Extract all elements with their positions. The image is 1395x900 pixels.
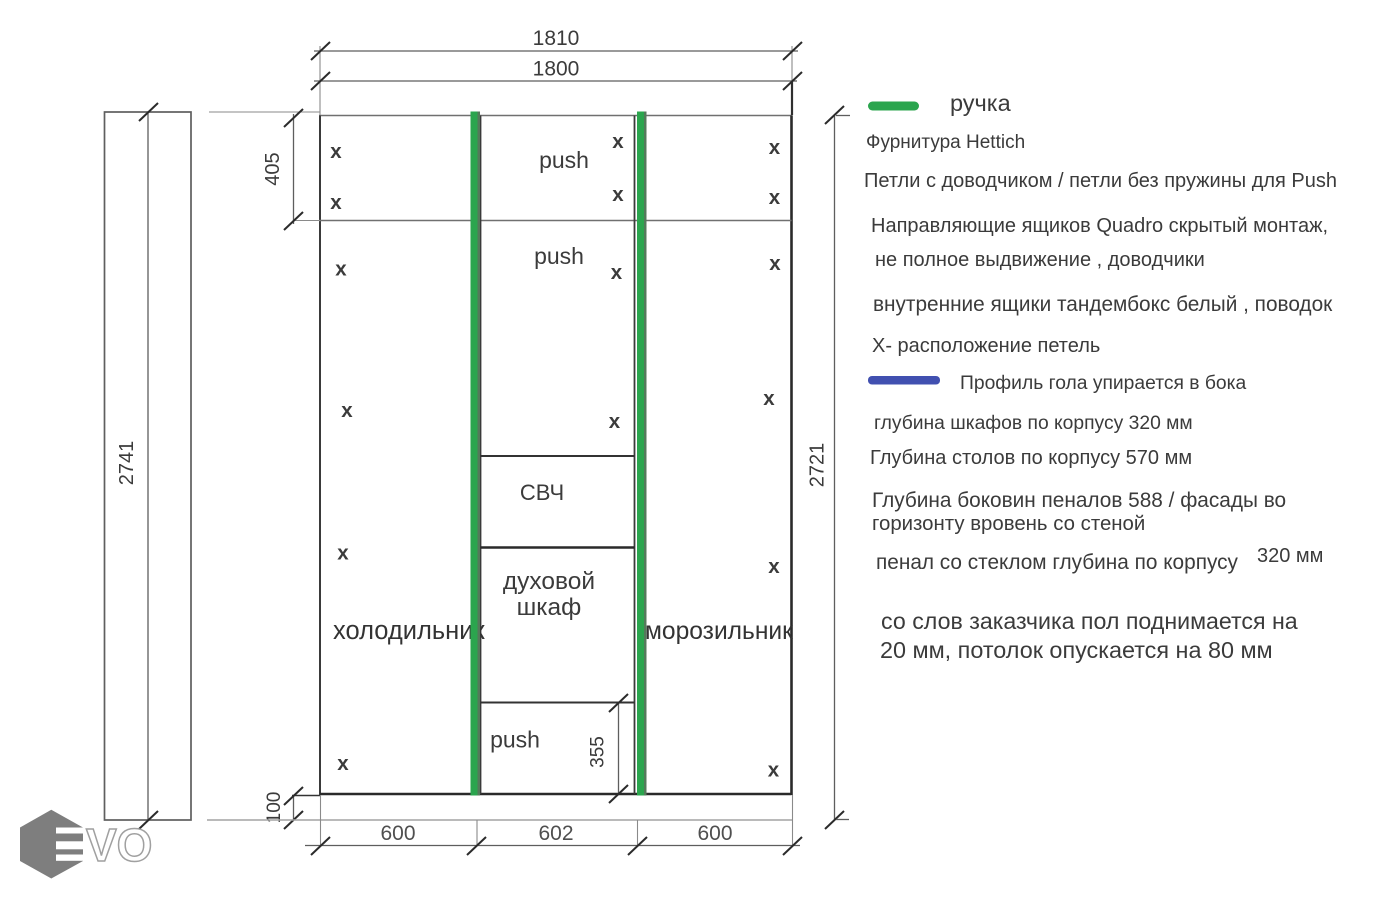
svg-text:Профиль гола упирается в бока: Профиль гола упирается в бока	[960, 373, 1246, 394]
svg-text:не полное выдвижение , доводчи: не полное выдвижение , доводчики	[875, 249, 1205, 271]
svg-text:push: push	[539, 147, 589, 173]
svg-text:x: x	[337, 752, 349, 775]
svg-text:x: x	[611, 261, 623, 284]
svg-text:x: x	[768, 555, 780, 578]
svg-text:пенал со стеклом глубина по ко: пенал со стеклом глубина по корпусу	[876, 551, 1239, 574]
svg-text:Фурнитура Hettich: Фурнитура Hettich	[866, 132, 1025, 153]
svg-text:x: x	[769, 136, 781, 159]
svg-text:20 мм, потолок опускается на: 20 мм, потолок опускается на 80 мм	[880, 637, 1273, 663]
svg-text:морозильник: морозильник	[645, 618, 793, 645]
svg-text:холодильник: холодильник	[333, 617, 485, 645]
svg-text:355: 355	[588, 736, 609, 768]
svg-text:x: x	[769, 186, 781, 209]
svg-text:X- расположение петель: X- расположение петель	[872, 335, 1100, 357]
svg-text:100: 100	[264, 792, 285, 824]
svg-text:духовой: духовой	[503, 568, 595, 595]
svg-text:x: x	[335, 258, 347, 281]
svg-text:x: x	[337, 542, 349, 565]
svg-text:600: 600	[380, 822, 415, 845]
svg-text:x: x	[612, 183, 624, 206]
svg-text:глубина шкафов по корпусу 320: глубина шкафов по корпусу 320 мм	[874, 413, 1193, 434]
svg-text:push: push	[534, 243, 584, 269]
svg-text:x: x	[330, 191, 342, 214]
svg-text:x: x	[768, 759, 780, 782]
svg-text:горизонту вровень со стеной: горизонту вровень со стеной	[872, 513, 1145, 535]
svg-text:602: 602	[538, 822, 573, 845]
svg-text:push: push	[490, 727, 540, 753]
svg-text:VO: VO	[86, 819, 152, 871]
svg-text:Направляющие ящиков Quadro скр: Направляющие ящиков Quadro скрытый монта…	[871, 215, 1328, 237]
svg-text:Петли с доводчиком / петли без: Петли с доводчиком / петли без пружины д…	[864, 170, 1337, 192]
svg-text:x: x	[341, 399, 353, 422]
svg-text:320 мм: 320 мм	[1257, 545, 1323, 567]
svg-text:внутренние ящики тандембокс бе: внутренние ящики тандембокс белый , пово…	[873, 293, 1333, 316]
svg-text:405: 405	[262, 152, 284, 185]
svg-text:2721: 2721	[807, 443, 829, 488]
svg-text:Глубина столов по корпусу 570: Глубина столов по корпусу 570 мм	[870, 447, 1192, 469]
svg-text:со слов заказчика пол поднимае: со слов заказчика пол поднимается на	[881, 608, 1298, 634]
svg-text:600: 600	[697, 822, 732, 845]
svg-text:СВЧ: СВЧ	[520, 480, 564, 505]
svg-text:x: x	[609, 410, 621, 433]
svg-text:шкаф: шкаф	[517, 594, 582, 621]
svg-text:x: x	[330, 140, 342, 163]
svg-text:ручка: ручка	[950, 90, 1012, 116]
svg-text:2741: 2741	[116, 441, 138, 486]
svg-text:x: x	[612, 130, 624, 153]
svg-text:Глубина боковин пеналов 588 /: Глубина боковин пеналов 588 / фасады во	[872, 489, 1286, 512]
svg-text:x: x	[763, 387, 775, 410]
svg-text:1810: 1810	[533, 27, 580, 50]
svg-text:x: x	[769, 252, 781, 275]
svg-text:1800: 1800	[533, 58, 580, 81]
